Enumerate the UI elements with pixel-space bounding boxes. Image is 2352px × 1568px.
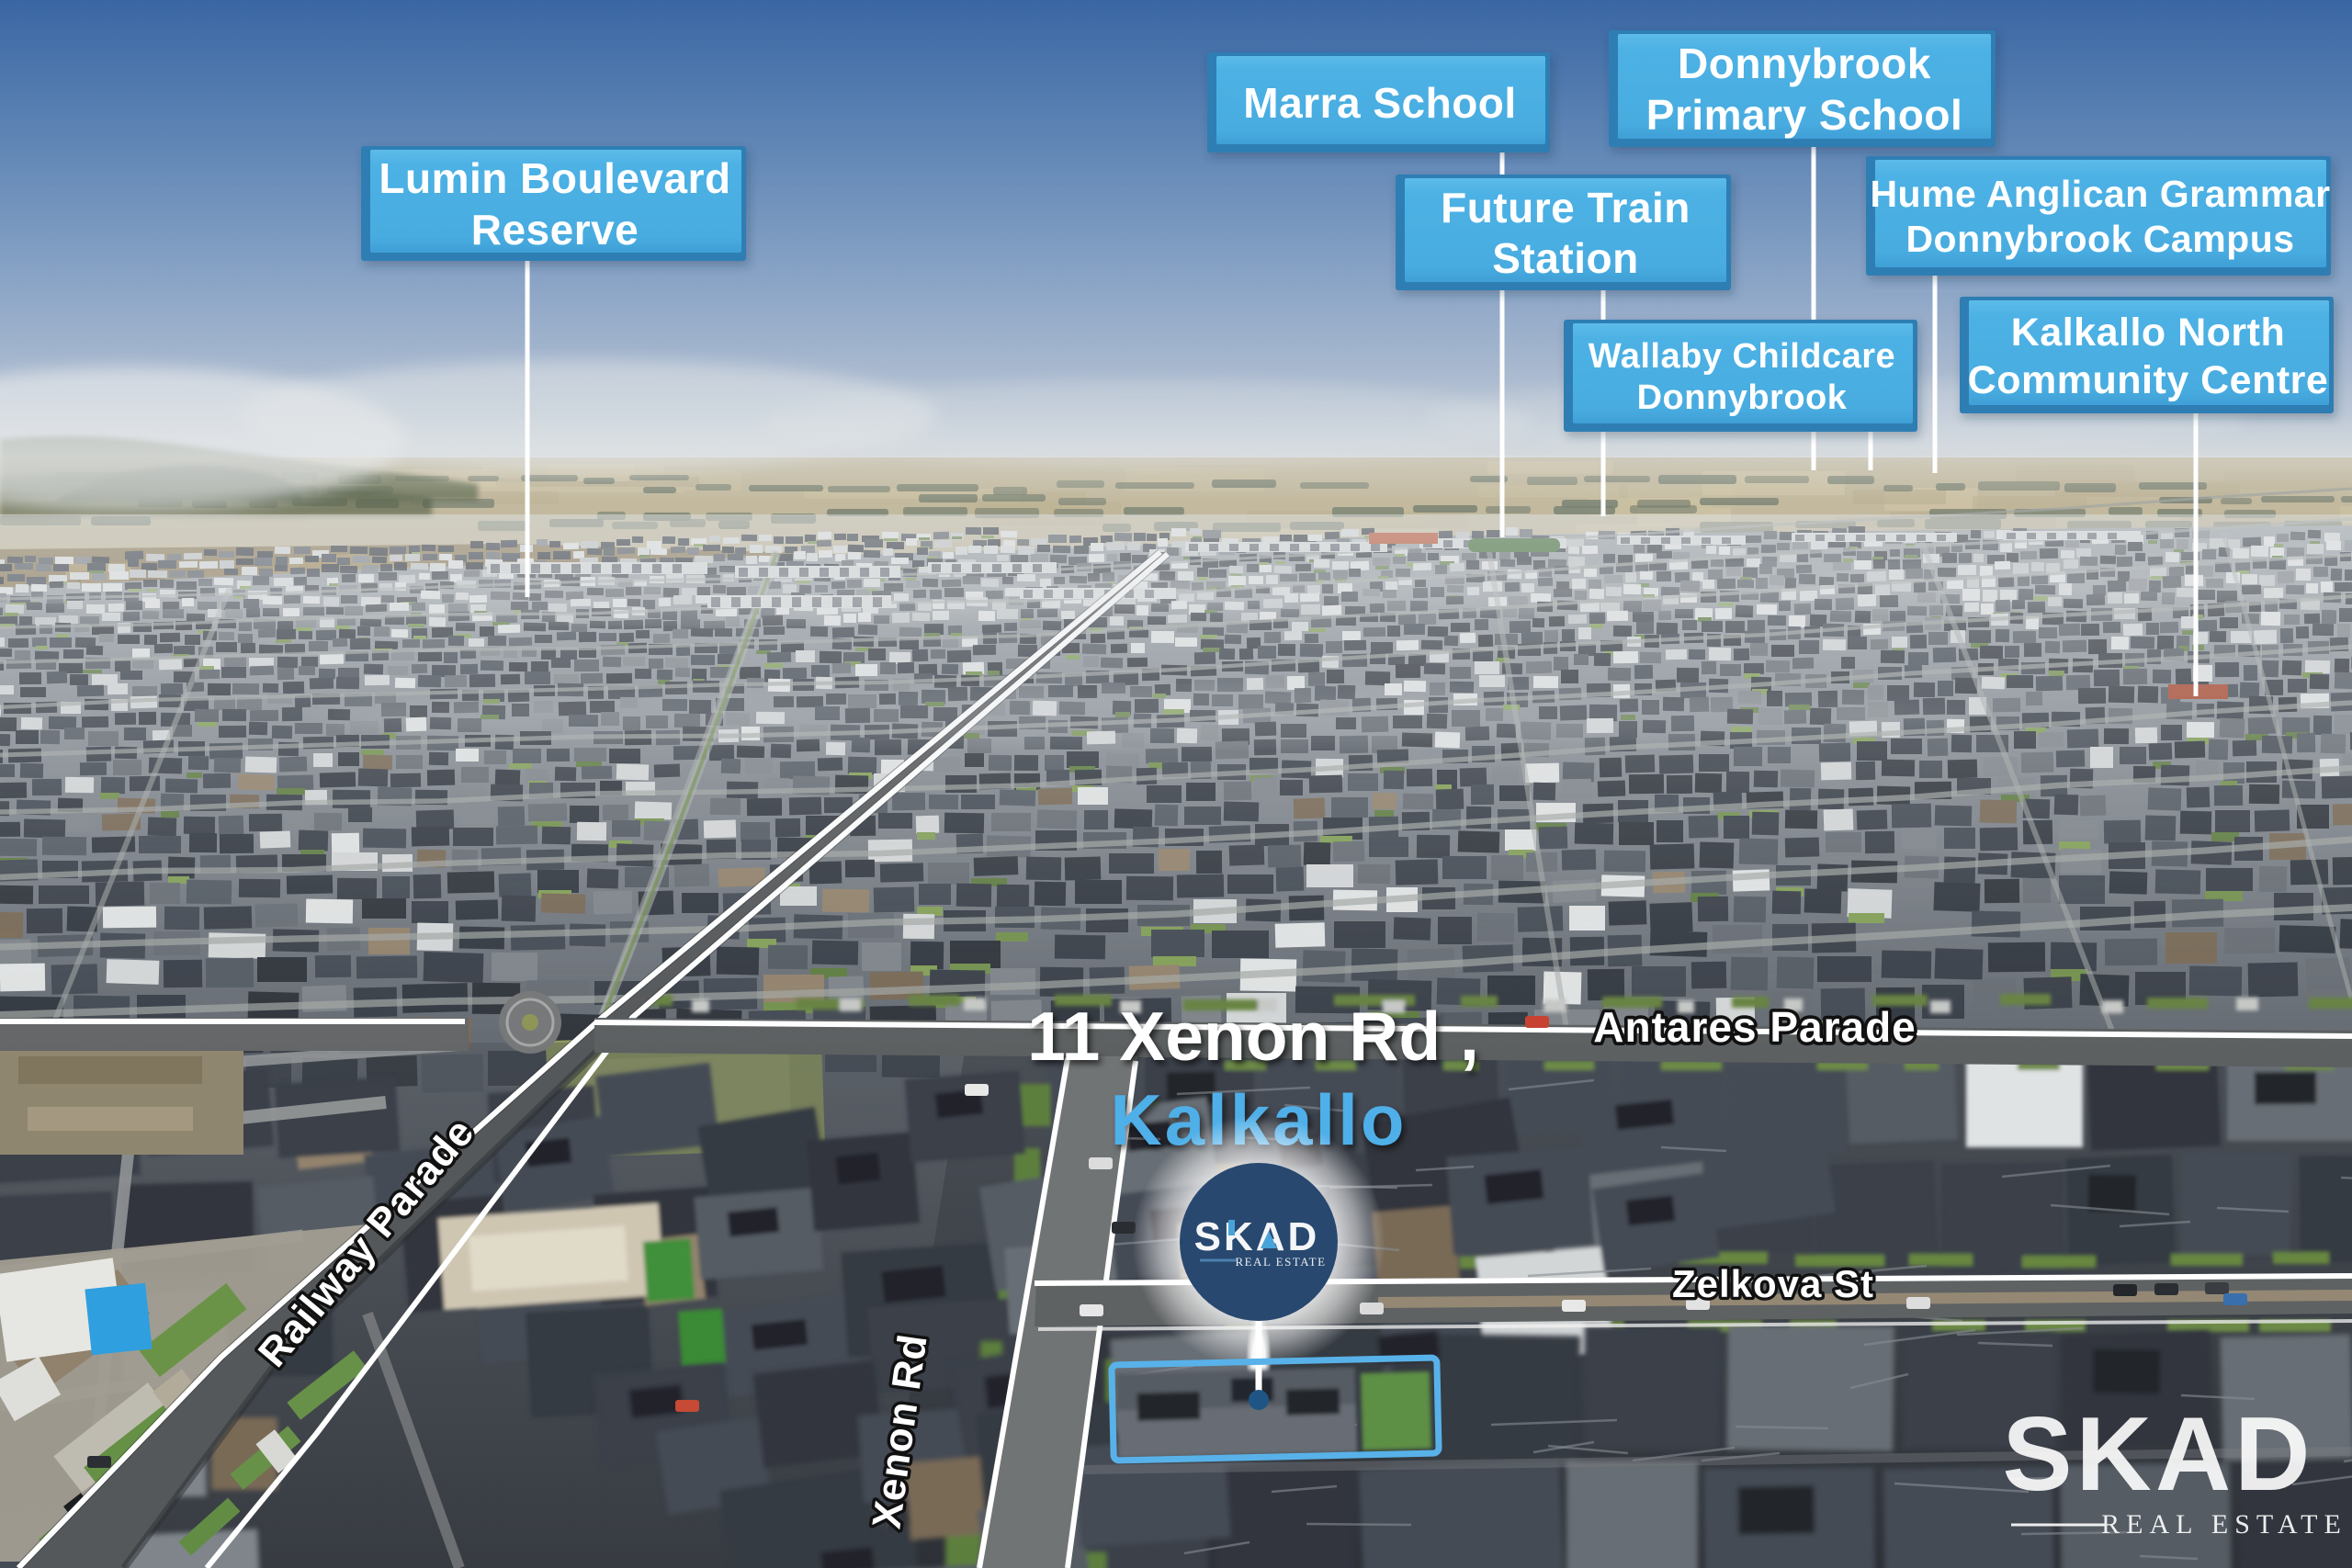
svg-text:Reserve: Reserve [471, 206, 639, 254]
svg-text:Zelkova St: Zelkova St [1672, 1262, 1874, 1305]
svg-text:Primary School: Primary School [1646, 91, 1962, 139]
svg-text:REAL ESTATE: REAL ESTATE [1235, 1255, 1326, 1269]
svg-text:Station: Station [1492, 234, 1638, 282]
svg-text:Community Centre: Community Centre [1968, 358, 2329, 402]
svg-text:Kalkallo North: Kalkallo North [2011, 310, 2286, 355]
svg-text:Donnybrook Campus: Donnybrook Campus [1905, 218, 2294, 260]
svg-text:Wallaby Childcare: Wallaby Childcare [1589, 337, 1895, 376]
svg-text:Marra School: Marra School [1243, 79, 1516, 127]
svg-text:Donnybrook: Donnybrook [1678, 39, 1931, 87]
svg-text:Lumin Boulevard: Lumin Boulevard [379, 154, 730, 202]
svg-text:Antares Parade: Antares Parade [1593, 1003, 1917, 1051]
svg-text:Donnybrook: Donnybrook [1637, 378, 1848, 417]
svg-text:Hume Anglican Grammar: Hume Anglican Grammar [1870, 173, 2330, 215]
svg-text:REAL ESTATE: REAL ESTATE [2101, 1509, 2347, 1540]
svg-text:SKAD: SKAD [2002, 1396, 2313, 1513]
svg-text:SKAD: SKAD [1194, 1214, 1320, 1259]
svg-text:Future Train: Future Train [1441, 184, 1690, 231]
svg-text:11 Xenon Rd ,: 11 Xenon Rd , [1027, 998, 1479, 1075]
